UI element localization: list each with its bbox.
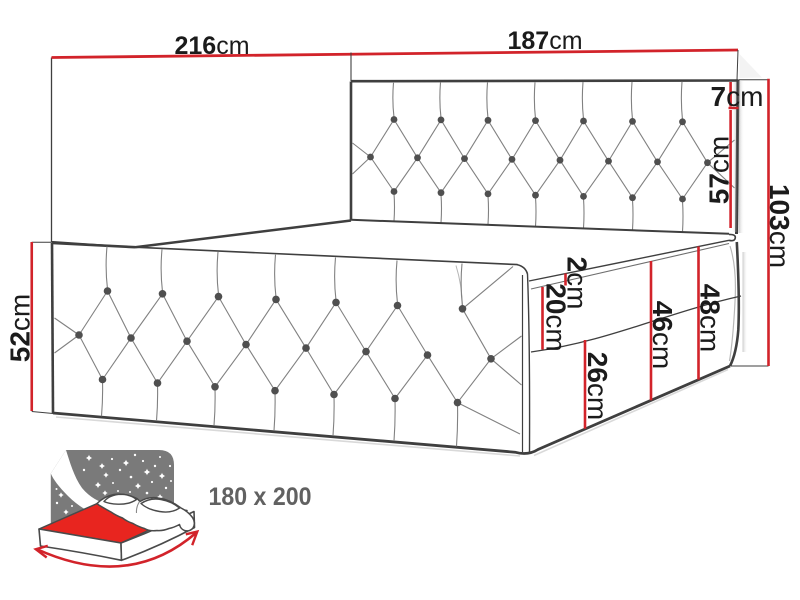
svg-text:57cm: 57cm <box>704 136 735 204</box>
svg-text:26cm: 26cm <box>582 352 613 420</box>
svg-text:216cm: 216cm <box>174 32 249 60</box>
svg-text:180 x 200: 180 x 200 <box>209 483 312 511</box>
svg-text:187cm: 187cm <box>507 27 582 55</box>
svg-text:20cm: 20cm <box>541 283 572 351</box>
svg-text:52cm: 52cm <box>5 294 36 362</box>
svg-text:103cm: 103cm <box>764 184 795 268</box>
svg-text:7cm: 7cm <box>711 81 764 112</box>
svg-text:46cm: 46cm <box>647 301 678 369</box>
svg-text:48cm: 48cm <box>695 284 726 352</box>
